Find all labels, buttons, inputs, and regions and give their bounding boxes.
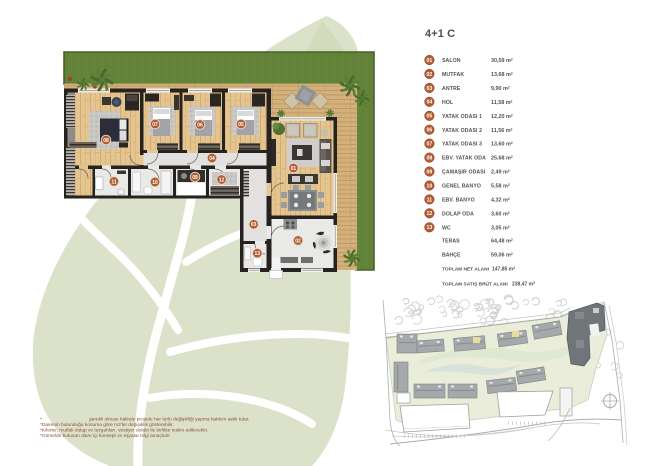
svg-text:ANTRE: ANTRE (442, 86, 461, 92)
svg-text:06: 06 (197, 122, 203, 128)
svg-text:09: 09 (192, 175, 198, 181)
svg-text:13,60 m2: 13,60 m2 (491, 141, 513, 148)
svg-text:04: 04 (209, 156, 215, 162)
svg-text:01: 01 (291, 166, 297, 172)
svg-text:EBV. BANYO: EBV. BANYO (442, 198, 475, 204)
svg-text:SALON: SALON (442, 58, 461, 64)
svg-text:*Görselde bulunan daire içi ko: *Görselde bulunan daire içi konsept ve e… (40, 433, 171, 439)
svg-text:03: 03 (427, 86, 433, 92)
svg-text:TERAS: TERAS (442, 239, 460, 245)
svg-text:30,59 m2: 30,59 m2 (491, 58, 513, 65)
svg-text:HOL: HOL (442, 100, 454, 106)
svg-text:3,60 m2: 3,60 m2 (491, 211, 510, 218)
svg-text:25,68 m2: 25,68 m2 (491, 155, 513, 162)
svg-text:*Kilerler, mutfak dolap ve tez: *Kilerler, mutfak dolap ve tezgahları, v… (40, 428, 208, 434)
svg-text:DOLAP ODA: DOLAP ODA (442, 211, 474, 217)
svg-text:11: 11 (427, 197, 433, 203)
svg-text:12: 12 (219, 177, 225, 183)
svg-text:64,48 m2: 64,48 m2 (491, 238, 513, 245)
svg-text:07: 07 (152, 122, 158, 128)
svg-text:4,32 m2: 4,32 m2 (491, 197, 510, 204)
svg-text:BAHÇE: BAHÇE (442, 253, 461, 259)
svg-text:5,58 m2: 5,58 m2 (491, 183, 510, 190)
svg-text:05: 05 (238, 122, 244, 128)
svg-text:10: 10 (427, 183, 433, 189)
svg-text:YATAK ODASI 3: YATAK ODASI 3 (442, 142, 482, 148)
svg-text:WC: WC (442, 225, 451, 231)
svg-text:3,05 m2: 3,05 m2 (491, 225, 510, 232)
svg-text:11,56 m2: 11,56 m2 (491, 127, 512, 134)
svg-text:*: * (40, 417, 42, 423)
svg-text:09: 09 (427, 169, 433, 175)
svg-text:01: 01 (427, 58, 433, 64)
svg-text:12,20 m2: 12,20 m2 (491, 113, 513, 120)
svg-text:*Dairenin bulunduğu konuma gör: *Dairenin bulunduğu konuma göre m2'ler d… (40, 422, 174, 428)
svg-text:10: 10 (152, 180, 158, 186)
svg-text:2,49 m2: 2,49 m2 (491, 169, 510, 176)
svg-text:147,85 m2: 147,85 m2 (492, 266, 515, 273)
svg-text:gerekli olması halinde projede: gerekli olması halinde projede her türlü… (89, 417, 250, 423)
svg-text:11: 11 (111, 179, 117, 185)
svg-text:238,47 m2: 238,47 m2 (512, 281, 535, 288)
svg-text:07: 07 (427, 142, 433, 148)
svg-text:4+1 C: 4+1 C (425, 28, 455, 40)
svg-text:06: 06 (427, 128, 433, 134)
svg-text:13: 13 (427, 225, 433, 231)
svg-text:TOPLAM NET ALANI: TOPLAM NET ALANI (442, 267, 490, 273)
svg-text:03: 03 (251, 222, 257, 228)
svg-text:05: 05 (427, 114, 433, 120)
svg-text:11,58 m2: 11,58 m2 (491, 99, 512, 106)
svg-text:YATAK ODASI 2: YATAK ODASI 2 (442, 128, 482, 134)
svg-text:ÇAMAŞIR ODASI: ÇAMAŞIR ODASI (442, 170, 486, 176)
svg-text:EBV. YATAK ODA: EBV. YATAK ODA (442, 156, 486, 162)
svg-text:13: 13 (255, 251, 261, 257)
svg-text:02: 02 (427, 72, 433, 78)
svg-text:13,68 m2: 13,68 m2 (491, 72, 513, 79)
svg-text:12: 12 (427, 211, 433, 217)
svg-text:GENEL BANYO: GENEL BANYO (442, 184, 481, 190)
svg-text:TOPLAM SATIŞ BRÜT ALANI: TOPLAM SATIŞ BRÜT ALANI (442, 280, 508, 287)
svg-text:08: 08 (427, 156, 433, 162)
svg-text:08: 08 (103, 138, 109, 144)
svg-text:9,90 m2: 9,90 m2 (491, 86, 510, 93)
svg-text:YATAK ODASI 1: YATAK ODASI 1 (442, 114, 482, 120)
svg-text:59,06 m2: 59,06 m2 (491, 252, 513, 259)
svg-text:04: 04 (427, 100, 433, 106)
svg-text:MUTFAK: MUTFAK (442, 72, 464, 78)
svg-text:02: 02 (295, 238, 301, 244)
